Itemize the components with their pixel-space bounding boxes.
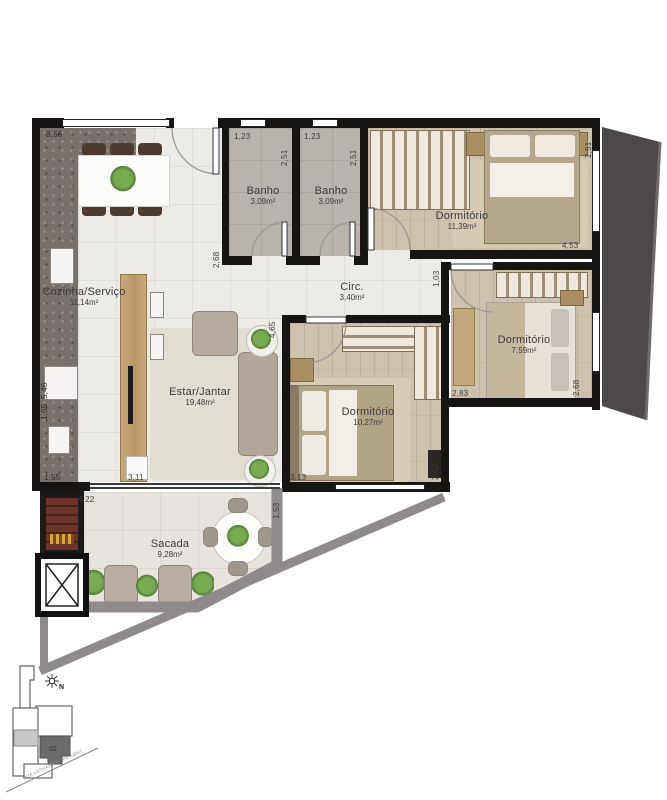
room-name: Circ. [340, 282, 365, 294]
room-label-dormitorio-2: Dormitório 10,27m² [342, 407, 395, 427]
room-name: Cozinha/Serviço [42, 287, 125, 299]
neighbor-unit-edge [646, 142, 660, 420]
nightstand [466, 132, 486, 156]
pillow [551, 353, 569, 391]
wall [441, 262, 449, 490]
room-area: 11,14m² [42, 299, 125, 307]
floor-plan: Cozinha/Serviço 11,14m² Banho 3,09m² Ban… [0, 0, 667, 800]
room-label-circ: Circ. 3,40m² [340, 282, 365, 302]
room-area: 3,09m² [315, 198, 348, 206]
tv-icon [128, 366, 133, 424]
double-bed [290, 385, 394, 481]
dim-label: 1,65 [40, 404, 49, 420]
dim-label: 4,22 [78, 495, 94, 504]
washing-machine [48, 426, 70, 454]
bed-sheet [490, 163, 574, 197]
dim-label: 2,83 [452, 389, 468, 398]
keyplan-unit-number: 02 [49, 746, 57, 753]
wall [218, 118, 600, 128]
room-name: Banho [247, 186, 280, 198]
room-name: Estar/Jantar [169, 387, 231, 399]
dim-label: 1,53 [272, 503, 281, 519]
room-area: 3,09m² [247, 198, 280, 206]
window [62, 119, 170, 127]
balcony-chair [228, 561, 248, 576]
room-label-cozinha: Cozinha/Serviço 11,14m² [42, 287, 125, 307]
plant-icon [109, 166, 137, 194]
room-name: Banho [315, 186, 348, 198]
pillow [535, 135, 575, 157]
plant-icon [192, 570, 214, 600]
neighbor-unit-mass [602, 127, 660, 420]
plant-icon [82, 568, 104, 600]
kitchen-sink [50, 248, 74, 284]
dim-label: 2,51 [584, 142, 593, 158]
balcony-chair [258, 527, 273, 547]
dim-label: 2,68 [572, 380, 581, 396]
dim-label: 4,65 [268, 322, 277, 338]
north-arrow-icon [45, 674, 59, 688]
dim-label: 1,23 [304, 132, 320, 141]
wall [493, 262, 600, 270]
room-name: Sacada [151, 539, 190, 551]
room-area: 19,48m² [169, 399, 231, 407]
pillow [302, 435, 326, 475]
wall [286, 256, 320, 265]
bed-sheet [329, 390, 357, 476]
room-label-sacada: Sacada 9,28m² [151, 539, 190, 559]
room-label-dormitorio-3: Dormitório 7,59m² [498, 335, 551, 355]
room-label-dormitorio-1: Dormitório 11,39m² [436, 211, 489, 231]
wall [32, 118, 40, 490]
window [592, 312, 600, 372]
keyplan-outline [36, 706, 72, 736]
wall [346, 315, 450, 323]
room-label-banho-1: Banho 3,09m² [247, 186, 280, 206]
room-name: Dormitório [436, 211, 489, 223]
closet [342, 326, 418, 352]
pillow [490, 135, 530, 157]
room-area: 9,28m² [151, 551, 190, 559]
balcony-chair [228, 498, 248, 513]
wardrobe [370, 130, 470, 210]
room-name: Dormitório [498, 335, 551, 347]
dim-label: 2,51 [280, 150, 289, 166]
wall [32, 482, 90, 491]
wall [222, 256, 252, 265]
dim-label: 1,03 [432, 271, 441, 287]
dim-label: 1,55 [44, 473, 60, 482]
bed-headboard [291, 386, 299, 480]
room-area: 3,40m² [340, 294, 365, 302]
key-plan [6, 666, 98, 792]
wall [354, 256, 368, 265]
dim-label: 1,23 [234, 132, 250, 141]
keyplan-outline [20, 666, 34, 708]
nightstand [560, 290, 584, 306]
dim-label: 5,46 [40, 383, 49, 399]
keyplan-street-name: RUA LOTHAR FELIPE OBST [22, 748, 84, 780]
grill-grate-icon [50, 534, 74, 544]
dim-label: 3,11 [128, 473, 144, 482]
desk [453, 308, 475, 386]
wall [410, 250, 600, 259]
sofa [238, 352, 278, 456]
nightstand [290, 358, 314, 382]
window [240, 119, 266, 127]
room-label-estar: Estar/Jantar 19,48m² [169, 387, 231, 407]
keyplan-outline [13, 708, 38, 776]
plant-icon [136, 574, 158, 600]
wall [222, 118, 229, 265]
dim-label: 3,13 [290, 473, 306, 482]
dim-label: 3,56 [46, 130, 62, 139]
lounge-armchair [158, 565, 192, 605]
room-area: 7,59m² [498, 347, 551, 355]
wall [292, 118, 300, 265]
north-label: N [59, 684, 64, 691]
dim-label: 2,62 [431, 464, 440, 480]
plant-icon [248, 459, 270, 481]
plant-icon [226, 525, 250, 549]
bar-stool [150, 292, 164, 318]
dim-label: 2,68 [212, 252, 221, 268]
dim-label: 2,51 [349, 150, 358, 166]
room-label-banho-2: Banho 3,09m² [315, 186, 348, 206]
room-area: 10,27m² [342, 419, 395, 427]
window [312, 119, 338, 127]
keyplan-unit-other [14, 730, 38, 746]
bar-stool [150, 334, 164, 360]
room-area: 11,39m² [436, 223, 489, 231]
balcony-chair [203, 527, 218, 547]
kitchen-stove [44, 366, 78, 400]
wall [441, 398, 600, 407]
pillow [302, 391, 326, 431]
armchair [192, 311, 238, 356]
keyplan-street-line [6, 748, 98, 792]
lounge-armchair [104, 565, 138, 605]
wall [282, 315, 290, 490]
double-bed [484, 130, 580, 244]
wardrobe [414, 326, 442, 400]
window [335, 484, 425, 490]
wall [360, 118, 368, 265]
pillow [551, 309, 569, 347]
window [592, 150, 600, 232]
room-name: Dormitório [342, 407, 395, 419]
dim-label: 4,53 [562, 241, 578, 250]
